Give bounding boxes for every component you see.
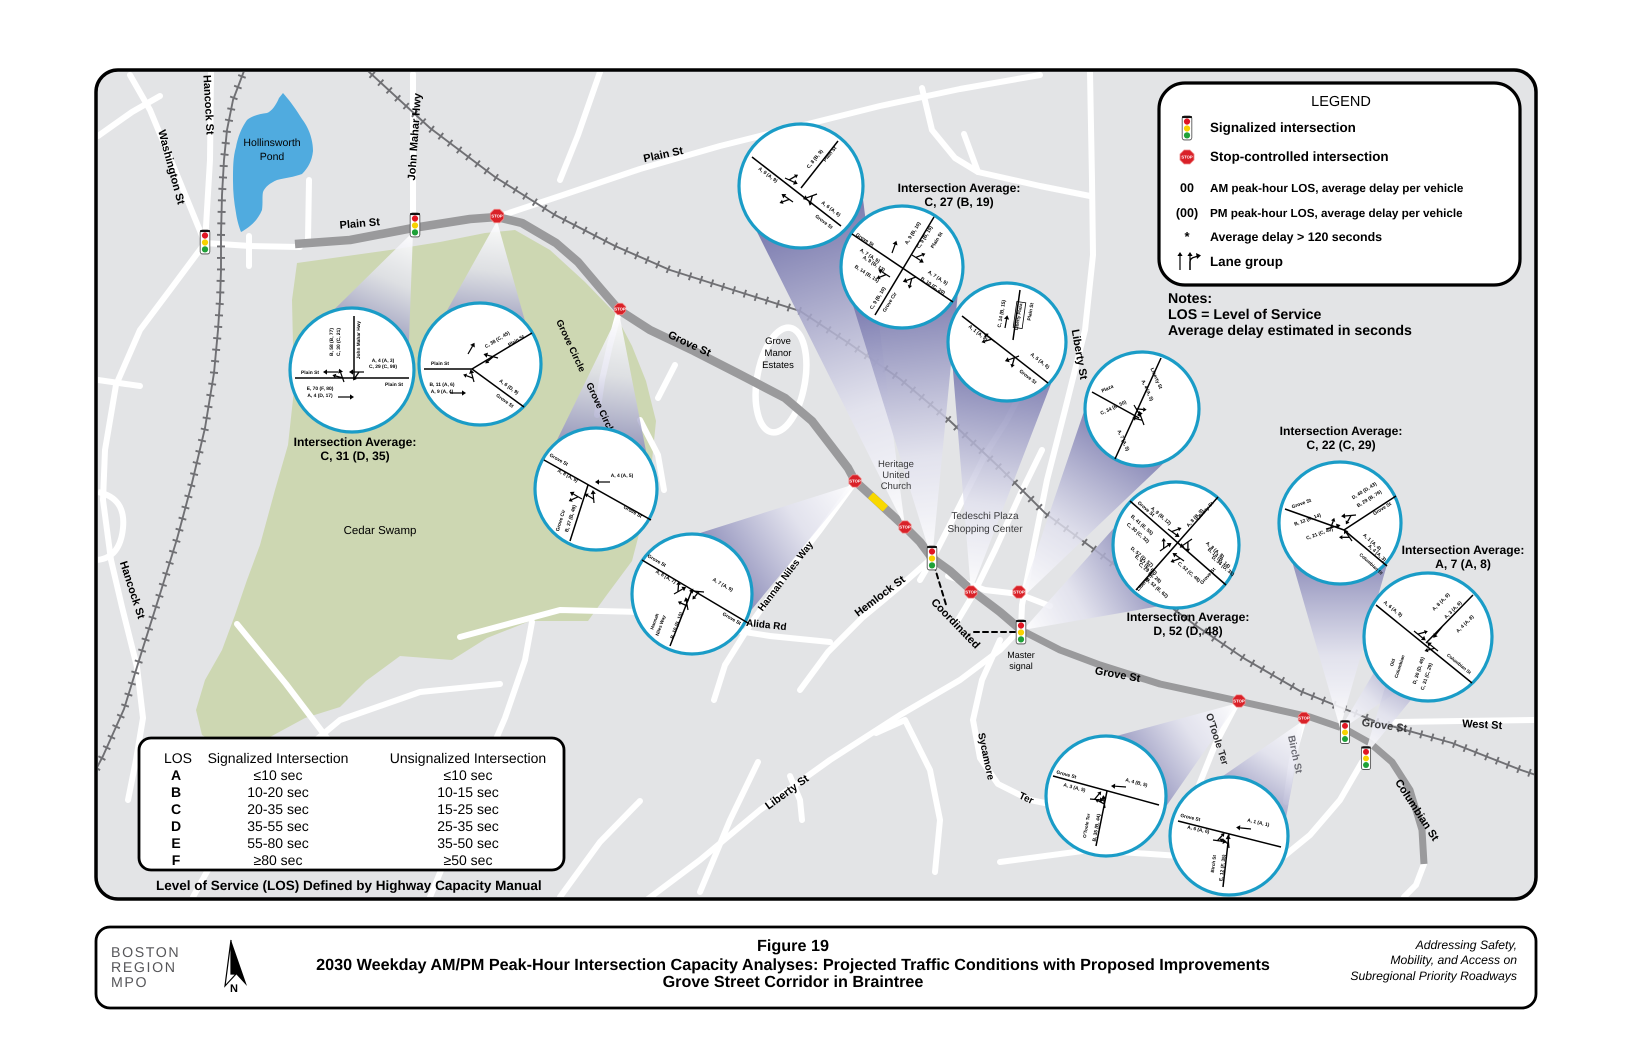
svg-text:Intersection Average:: Intersection Average:	[294, 435, 417, 449]
svg-text:A: A	[171, 767, 181, 783]
svg-text:LOS: LOS	[164, 750, 192, 766]
svg-text:C, 27 (B, 19): C, 27 (B, 19)	[924, 195, 993, 209]
svg-text:Church: Church	[881, 481, 912, 492]
svg-text:Intersection Average:: Intersection Average:	[898, 181, 1021, 195]
svg-text:A, 7 (A, 8): A, 7 (A, 8)	[1435, 557, 1491, 571]
svg-text:C, 22 (C, 29): C, 22 (C, 29)	[1306, 438, 1375, 452]
svg-text:Average delay > 120 seconds: Average delay > 120 seconds	[1210, 230, 1382, 244]
svg-text:Heritage: Heritage	[878, 459, 914, 470]
svg-text:John Mahar Hwy: John Mahar Hwy	[356, 321, 362, 359]
svg-text:PM peak-hour LOS, average dela: PM peak-hour LOS, average delay per vehi…	[1210, 207, 1463, 220]
svg-text:F: F	[172, 852, 181, 868]
svg-text:N: N	[230, 983, 238, 995]
svg-text:Plain St: Plain St	[385, 382, 403, 388]
svg-text:Signalized Intersection: Signalized Intersection	[208, 750, 349, 766]
svg-text:STOP: STOP	[899, 525, 911, 530]
svg-text:B, 11 (A, 6): B, 11 (A, 6)	[429, 382, 454, 388]
svg-text:20-35 sec: 20-35 sec	[247, 801, 308, 817]
svg-text:Signalized intersection: Signalized intersection	[1210, 120, 1356, 135]
svg-text:REGION: REGION	[111, 960, 177, 976]
svg-text:signal: signal	[1009, 661, 1033, 671]
svg-text:Cedar Swamp: Cedar Swamp	[344, 525, 417, 537]
svg-text:E, 70 (F, 80): E, 70 (F, 80)	[307, 386, 334, 392]
svg-text:MPO: MPO	[111, 975, 148, 991]
svg-text:Average delay estimated in sec: Average delay estimated in seconds	[1168, 323, 1412, 339]
svg-text:≤10 sec: ≤10 sec	[254, 767, 303, 783]
svg-text:55-80 sec: 55-80 sec	[247, 835, 308, 851]
svg-text:Master: Master	[1007, 650, 1035, 660]
svg-text:≤10 sec: ≤10 sec	[444, 767, 493, 783]
svg-text:West St: West St	[1462, 718, 1503, 732]
svg-text:STOP: STOP	[1233, 699, 1245, 704]
svg-text:LEGEND: LEGEND	[1311, 94, 1371, 110]
svg-text:A, 4 (A, 5): A, 4 (A, 5)	[611, 473, 634, 479]
svg-text:Manor: Manor	[765, 348, 792, 359]
svg-text:Level of Service (LOS) Defined: Level of Service (LOS) Defined by Highwa…	[156, 878, 542, 893]
svg-text:10-20 sec: 10-20 sec	[247, 784, 308, 800]
svg-text:Mobility, and Access on: Mobility, and Access on	[1390, 953, 1517, 967]
svg-text:D: D	[171, 818, 181, 834]
svg-text:A, 9 (A, 4): A, 9 (A, 4)	[431, 389, 454, 395]
svg-text:STOP: STOP	[1298, 716, 1310, 721]
svg-text:35-50 sec: 35-50 sec	[437, 835, 498, 851]
svg-text:Plain St: Plain St	[431, 361, 449, 367]
svg-text:Estates: Estates	[762, 360, 794, 371]
svg-text:35-55 sec: 35-55 sec	[247, 818, 308, 834]
svg-text:≥80 sec: ≥80 sec	[254, 852, 303, 868]
svg-text:STOP: STOP	[614, 307, 626, 312]
svg-text:Tedeschi Plaza: Tedeschi Plaza	[951, 511, 1019, 522]
svg-text:A, 4 (A, 3): A, 4 (A, 3)	[372, 358, 395, 364]
svg-text:10-15 sec: 10-15 sec	[437, 784, 498, 800]
svg-text:D, 52 (D, 48): D, 52 (D, 48)	[1153, 624, 1222, 638]
svg-text:(00): (00)	[1176, 206, 1198, 220]
svg-text:Pond: Pond	[260, 151, 285, 163]
svg-text:25-35 sec: 25-35 sec	[437, 818, 498, 834]
svg-text:Plain St: Plain St	[301, 370, 319, 376]
svg-text:C, 31 (D, 35): C, 31 (D, 35)	[320, 449, 389, 463]
svg-text:Subregional Priority Roadways: Subregional Priority Roadways	[1350, 969, 1517, 983]
svg-text:Lane group: Lane group	[1210, 254, 1283, 269]
svg-text:15-25 sec: 15-25 sec	[437, 801, 498, 817]
svg-text:Intersection Average:: Intersection Average:	[1280, 424, 1403, 438]
svg-text:B, 58 (B, 77): B, 58 (B, 77)	[329, 328, 335, 356]
svg-text:STOP: STOP	[965, 590, 977, 595]
svg-text:AM peak-hour LOS, average dela: AM peak-hour LOS, average delay per vehi…	[1210, 182, 1464, 195]
svg-text:Hollinsworth: Hollinsworth	[243, 137, 300, 149]
svg-text:C, 30 (C, 21): C, 30 (C, 21)	[336, 328, 342, 356]
svg-text:LOS = Level of Service: LOS = Level of Service	[1168, 307, 1321, 323]
svg-text:≥50 sec: ≥50 sec	[444, 852, 493, 868]
svg-text:STOP: STOP	[1013, 590, 1025, 595]
svg-text:Addressing Safety,: Addressing Safety,	[1415, 938, 1517, 952]
svg-text:2030 Weekday AM/PM Peak-Hour I: 2030 Weekday AM/PM Peak-Hour Intersectio…	[316, 956, 1270, 974]
svg-text:C, 29 (C, 99): C, 29 (C, 99)	[369, 364, 397, 370]
svg-text:Intersection Average:: Intersection Average:	[1127, 610, 1250, 624]
svg-text:A, 4 (D, 17): A, 4 (D, 17)	[307, 393, 333, 399]
svg-text:E: E	[171, 835, 180, 851]
svg-text:C: C	[171, 801, 181, 817]
svg-text:00: 00	[1180, 181, 1194, 195]
svg-text:Grove: Grove	[765, 336, 791, 347]
svg-text:STOP: STOP	[849, 479, 861, 484]
svg-text:STOP: STOP	[491, 214, 503, 219]
svg-text:Grove Street Corridor in Brain: Grove Street Corridor in Braintree	[663, 973, 924, 991]
svg-text:United: United	[882, 470, 909, 481]
svg-text:STOP: STOP	[1181, 155, 1193, 160]
svg-text:B: B	[171, 784, 181, 800]
svg-text:Stop-controlled intersection: Stop-controlled intersection	[1210, 149, 1389, 164]
svg-text:Figure 19: Figure 19	[757, 937, 829, 955]
svg-text:Unsignalized Intersection: Unsignalized Intersection	[390, 750, 546, 766]
svg-text:Notes:: Notes:	[1168, 291, 1212, 307]
svg-text:Intersection Average:: Intersection Average:	[1402, 543, 1525, 557]
svg-text:Shopping Center: Shopping Center	[947, 524, 1023, 535]
svg-text:BOSTON: BOSTON	[111, 945, 180, 961]
